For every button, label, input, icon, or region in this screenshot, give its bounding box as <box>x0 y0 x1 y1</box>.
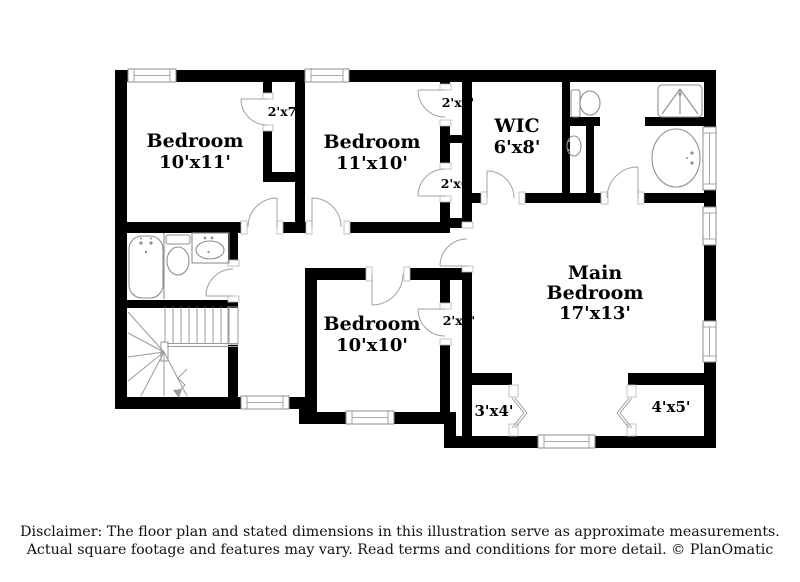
disclaimer: Disclaimer: The floor plan and stated di… <box>20 524 780 558</box>
bifold-door-closet-4x5 <box>617 398 632 428</box>
floor-plan-drawing: Bedroom 10'x11' Bedroom 11'x10' WIC 6'x8… <box>0 0 800 582</box>
window-icon <box>305 69 349 82</box>
stair-treads <box>165 307 238 347</box>
closet-label-2x4: 2'x4' <box>442 95 475 110</box>
door-bedroom-11x10 <box>312 198 341 227</box>
room-label-bedroom-10x11: Bedroom <box>147 130 244 152</box>
room-label-wic: WIC <box>493 115 539 137</box>
bathtub-icon <box>129 236 163 298</box>
sink-icon <box>192 233 229 263</box>
door-closet-2x7 <box>241 99 267 125</box>
shower-icon <box>658 85 702 117</box>
door-main-bedroom <box>440 239 467 266</box>
bifold-door-closet-3x4 <box>512 398 527 428</box>
disclaimer-line-1: Disclaimer: The floor plan and stated di… <box>20 524 780 540</box>
window-icon <box>538 435 595 448</box>
floor-plan-canvas: Bedroom 10'x11' Bedroom 11'x10' WIC 6'x8… <box>0 0 800 582</box>
room-dims-bedroom-11x10: 11'x10' <box>336 153 408 174</box>
closet-label-2x6: 2'x6' <box>441 176 474 191</box>
door-jambs <box>228 84 644 436</box>
toilet-icon <box>571 90 600 117</box>
door-wic <box>487 171 514 198</box>
door-bedroom-10x10 <box>372 274 403 305</box>
room-label-main-bedroom-1: Main <box>568 262 623 284</box>
closet-label-2x8: 2'x8' <box>443 313 476 328</box>
staircase <box>128 307 238 398</box>
closet-label-3x4: 3'x4' <box>474 402 513 420</box>
door-closet-2x8 <box>418 309 445 336</box>
door-main-bathroom <box>607 167 638 198</box>
window-icon <box>241 396 289 409</box>
window-icon <box>346 411 394 424</box>
door-hall-bathroom <box>206 269 233 296</box>
disclaimer-line-2: Actual square footage and features may v… <box>26 542 774 558</box>
window-icon <box>703 127 716 190</box>
window-icon <box>703 321 716 362</box>
stair-winders <box>128 312 187 396</box>
bathtub-icon <box>652 129 700 187</box>
door-bedroom-10x11 <box>248 198 277 227</box>
room-label-bedroom-10x10: Bedroom <box>324 313 421 335</box>
closet-label-2x7: 2'x7' <box>268 104 301 119</box>
room-dims-wic: 6'x8' <box>494 137 541 158</box>
closet-label-4x5: 4'x5' <box>651 398 690 416</box>
room-dims-bedroom-10x11: 10'x11' <box>159 152 231 173</box>
window-icon <box>128 69 176 82</box>
window-icon <box>703 207 716 245</box>
room-dims-bedroom-10x10: 10'x10' <box>336 335 408 356</box>
room-label-main-bedroom-2: Bedroom <box>547 282 644 304</box>
room-label-bedroom-11x10: Bedroom <box>324 131 421 153</box>
hall-bathroom-fixtures <box>129 233 229 299</box>
toilet-icon <box>166 235 190 275</box>
room-dims-main-bedroom: 17'x13' <box>559 303 631 324</box>
